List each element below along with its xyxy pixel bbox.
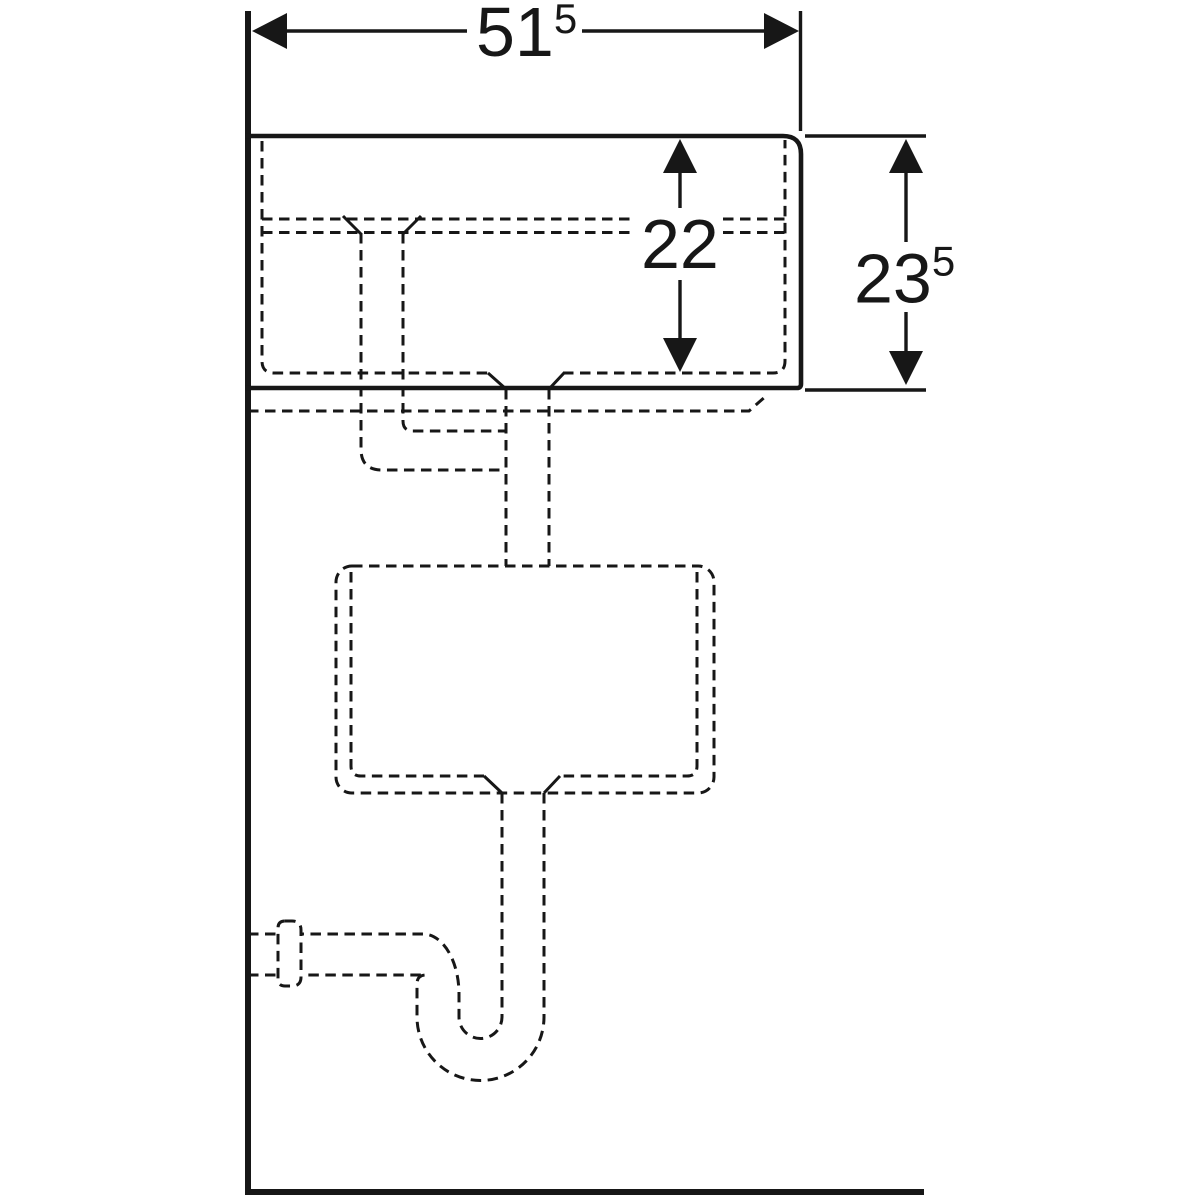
- svg-text:235: 235: [854, 238, 955, 318]
- svg-text:22: 22: [641, 205, 719, 283]
- svg-text:515: 515: [476, 0, 577, 71]
